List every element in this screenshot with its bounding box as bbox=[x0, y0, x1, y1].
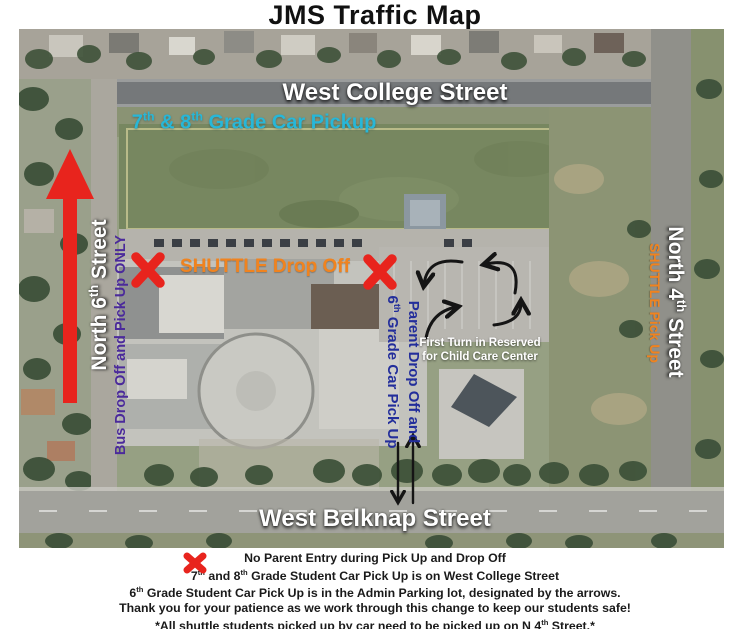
legend-line-1: No Parent Entry during Pick Up and Drop … bbox=[0, 551, 750, 566]
shuttle-pick-up-label: SHUTTLE Pick Up bbox=[647, 243, 663, 363]
grade78-pickup-label: 7th & 8th Grade Car Pickup bbox=[132, 110, 377, 135]
parent-drop-off-line2: 6th Grade Car Pick Up bbox=[384, 295, 405, 448]
parent-drop-off-line1: Parent Drop Off and bbox=[405, 295, 422, 448]
legend: No Parent Entry during Pick Up and Drop … bbox=[0, 548, 750, 629]
shuttle-drop-off-label: SHUTTLE Drop Off bbox=[180, 256, 350, 278]
street-label-belknap: West Belknap Street bbox=[259, 505, 491, 533]
no-entry-x-icon-right bbox=[368, 259, 392, 285]
no-entry-x-icon-left bbox=[136, 257, 160, 283]
circulation-arrows-icon bbox=[424, 261, 521, 338]
legend-line-4: Thank you for your patience as we work t… bbox=[0, 601, 750, 616]
legend-line-5: *All shuttle students picked up by car n… bbox=[0, 616, 750, 629]
page-title: JMS Traffic Map bbox=[0, 0, 750, 31]
child-care-note: First Turn in Reserved for Child Care Ce… bbox=[419, 336, 540, 364]
legend-x-icon bbox=[183, 552, 207, 574]
legend-text: No Parent Entry during Pick Up and Drop … bbox=[0, 548, 750, 629]
legend-line-2: 7th and 8th Grade Student Car Pick Up is… bbox=[0, 566, 750, 584]
satellite-map: West College Street 7th & 8th Grade Car … bbox=[19, 29, 724, 548]
parent-drop-off-label: Parent Drop Off and 6th Grade Car Pick U… bbox=[384, 295, 422, 448]
child-care-note-line1: First Turn in Reserved bbox=[419, 336, 540, 350]
street-label-college: West College Street bbox=[283, 79, 508, 107]
street-label-north4: North 4th Street bbox=[663, 226, 689, 377]
child-care-note-line2: for Child Care Center bbox=[419, 350, 540, 364]
legend-line-3: 6th Grade Student Car Pick Up is in the … bbox=[0, 583, 750, 601]
traffic-map-page: JMS Traffic Map bbox=[0, 0, 750, 629]
bus-drop-off-label: Bus Drop Off and Pick Up ONLY bbox=[113, 235, 129, 455]
street-label-north6: North 6th Street bbox=[86, 219, 112, 370]
